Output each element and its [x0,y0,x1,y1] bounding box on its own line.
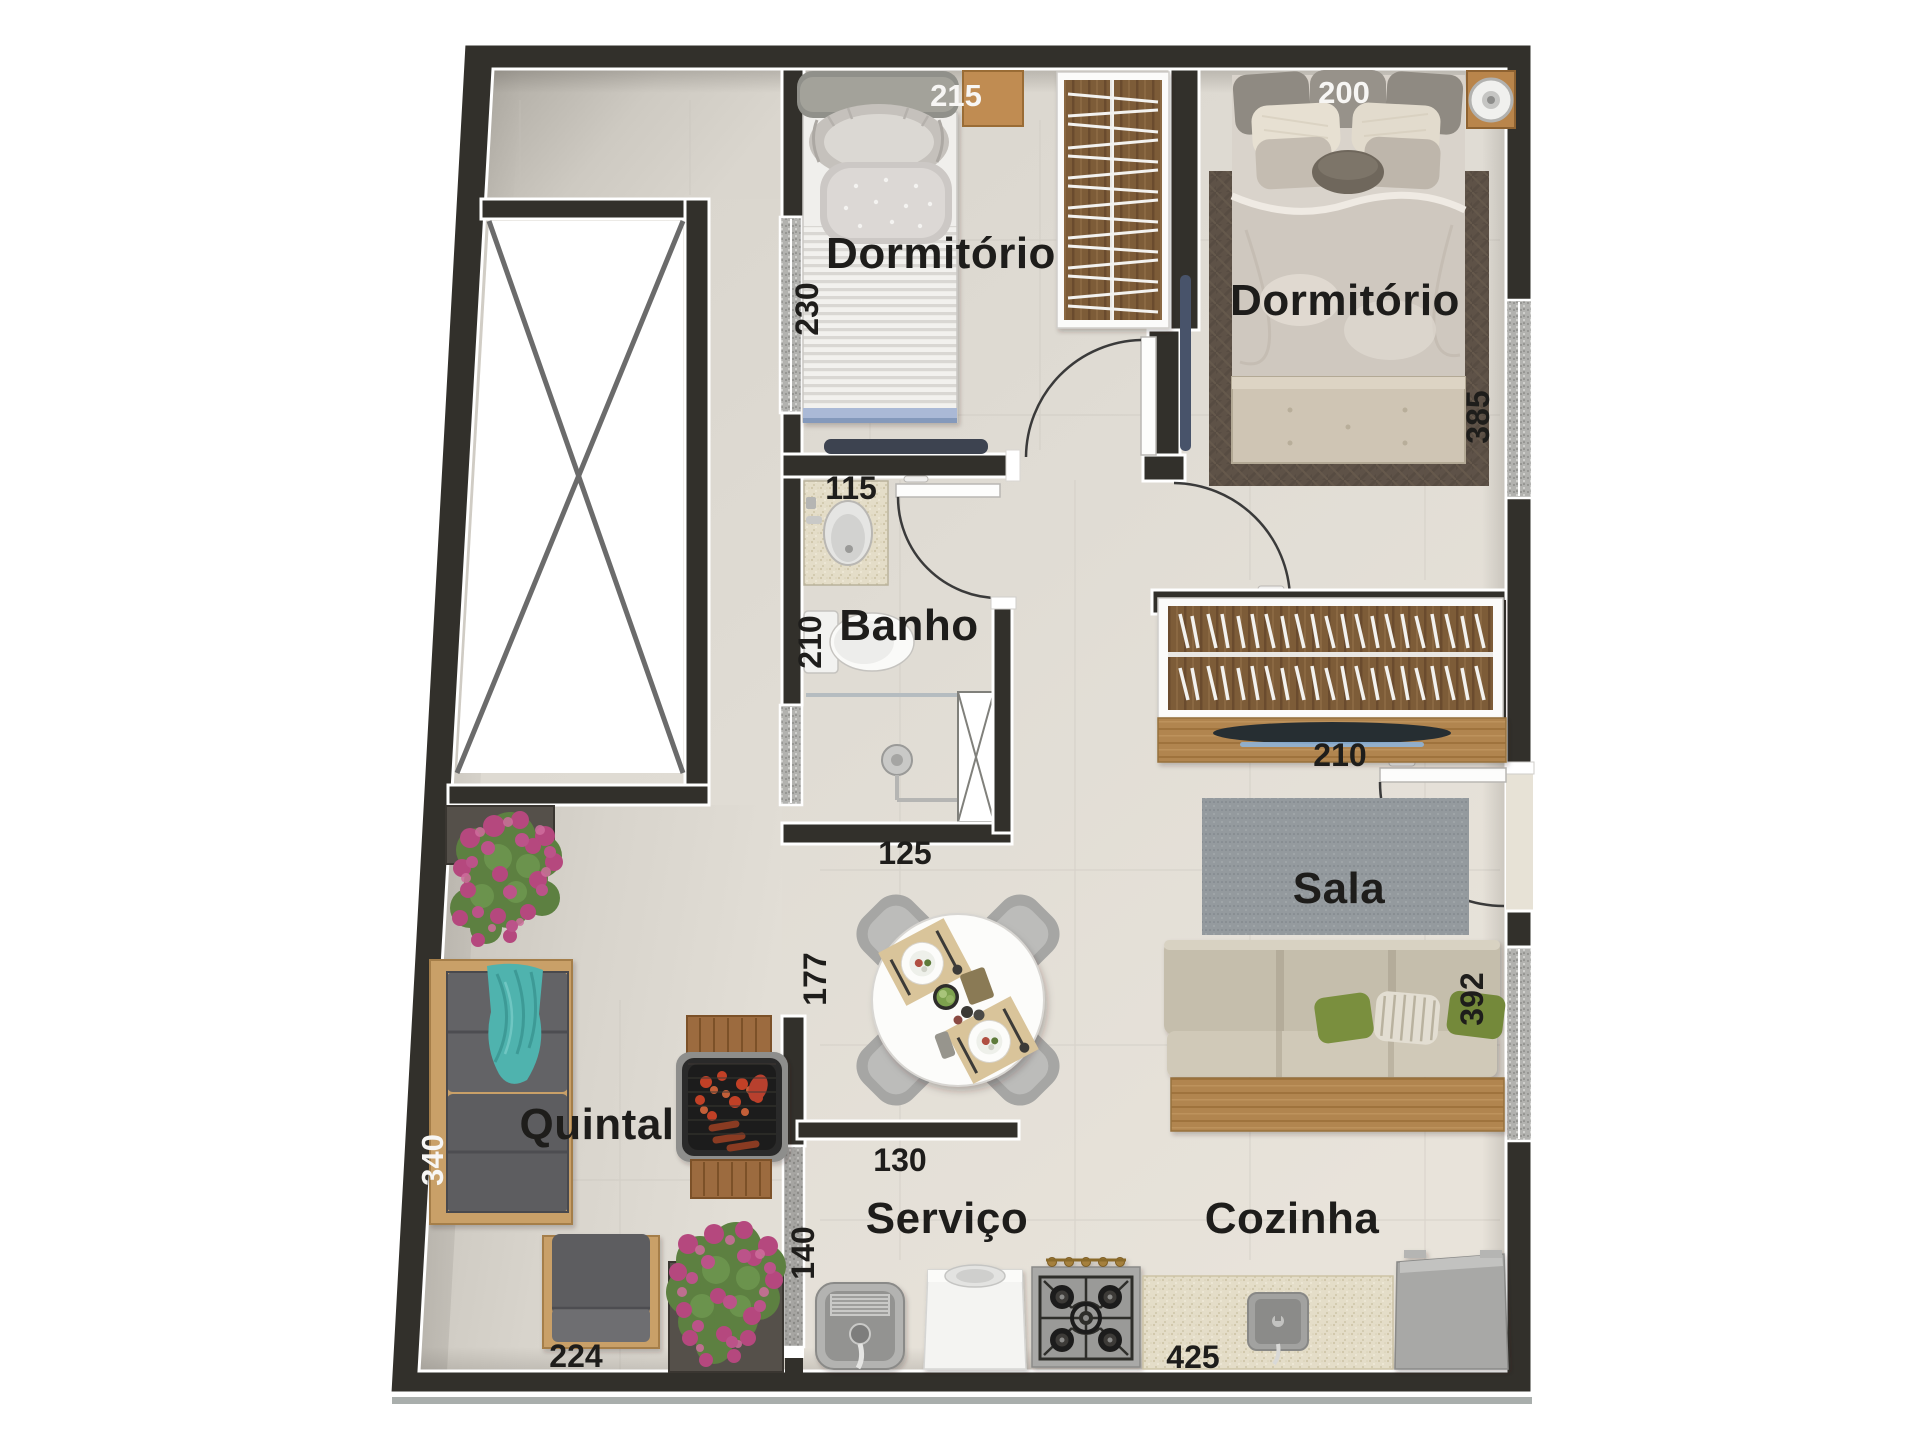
svg-text:Sala: Sala [1293,864,1386,913]
svg-text:385: 385 [1460,390,1496,443]
svg-text:Quintal: Quintal [519,1100,674,1149]
svg-text:Cozinha: Cozinha [1205,1194,1380,1243]
svg-text:210: 210 [1313,737,1366,773]
svg-text:425: 425 [1166,1339,1219,1375]
svg-text:177: 177 [797,952,833,1005]
svg-text:340: 340 [415,1134,450,1186]
svg-text:140: 140 [785,1226,821,1279]
svg-text:Dormitório: Dormitório [826,229,1056,278]
svg-text:215: 215 [930,78,982,113]
svg-text:Dormitório: Dormitório [1230,276,1460,325]
svg-text:Serviço: Serviço [866,1194,1028,1243]
svg-text:Banho: Banho [839,601,978,650]
svg-text:224: 224 [549,1338,603,1374]
svg-text:130: 130 [873,1142,926,1178]
svg-text:125: 125 [878,835,931,871]
svg-text:392: 392 [1454,972,1490,1025]
svg-text:230: 230 [789,282,825,335]
svg-text:210: 210 [792,615,828,668]
svg-text:115: 115 [825,470,877,506]
svg-text:200: 200 [1318,75,1370,110]
